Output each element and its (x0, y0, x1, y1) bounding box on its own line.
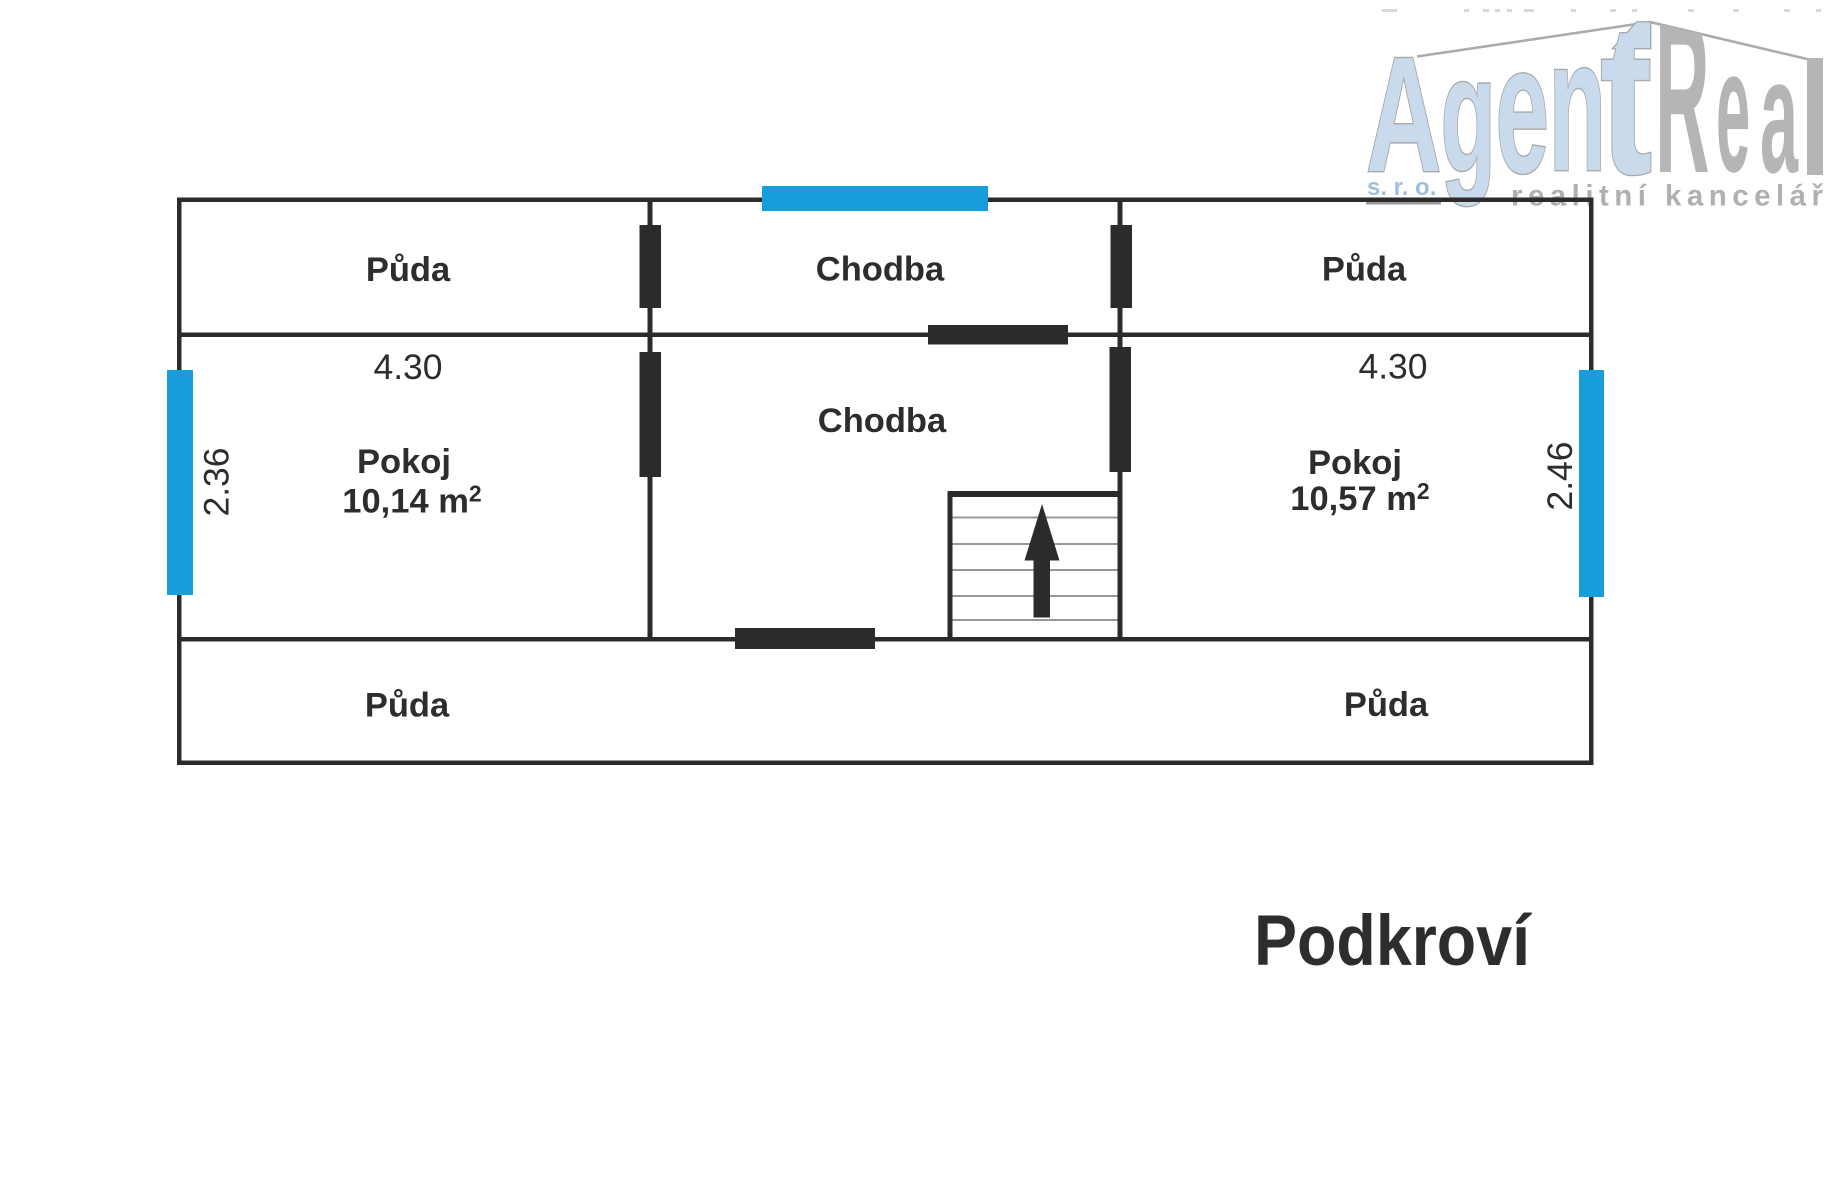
svg-text:g: g (1441, 22, 1496, 207)
svg-text:Podkroví: Podkroví (1254, 902, 1532, 981)
svg-text:10,14 m2: 10,14 m2 (342, 481, 481, 521)
svg-text:realitní kancelář: realitní kancelář (1511, 180, 1828, 213)
svg-text:Půda: Půda (1322, 251, 1407, 289)
svg-text:2.46: 2.46 (1540, 441, 1580, 510)
svg-text:Půda: Půda (1344, 686, 1429, 724)
svg-text:10,57 m2: 10,57 m2 (1290, 478, 1429, 518)
svg-text:Půda: Půda (365, 687, 450, 725)
svg-text:2.36: 2.36 (197, 447, 237, 516)
svg-text:Pokoj: Pokoj (1308, 444, 1402, 482)
svg-text:Půda: Půda (366, 251, 451, 289)
svg-text:s. r. o.: s. r. o. (1367, 174, 1436, 201)
svg-text:Chodba: Chodba (816, 251, 945, 289)
svg-text:Pokoj: Pokoj (357, 443, 451, 481)
svg-text:4.30: 4.30 (373, 347, 442, 387)
svg-text:4.30: 4.30 (1358, 347, 1427, 387)
svg-text:Chodba: Chodba (818, 402, 947, 440)
